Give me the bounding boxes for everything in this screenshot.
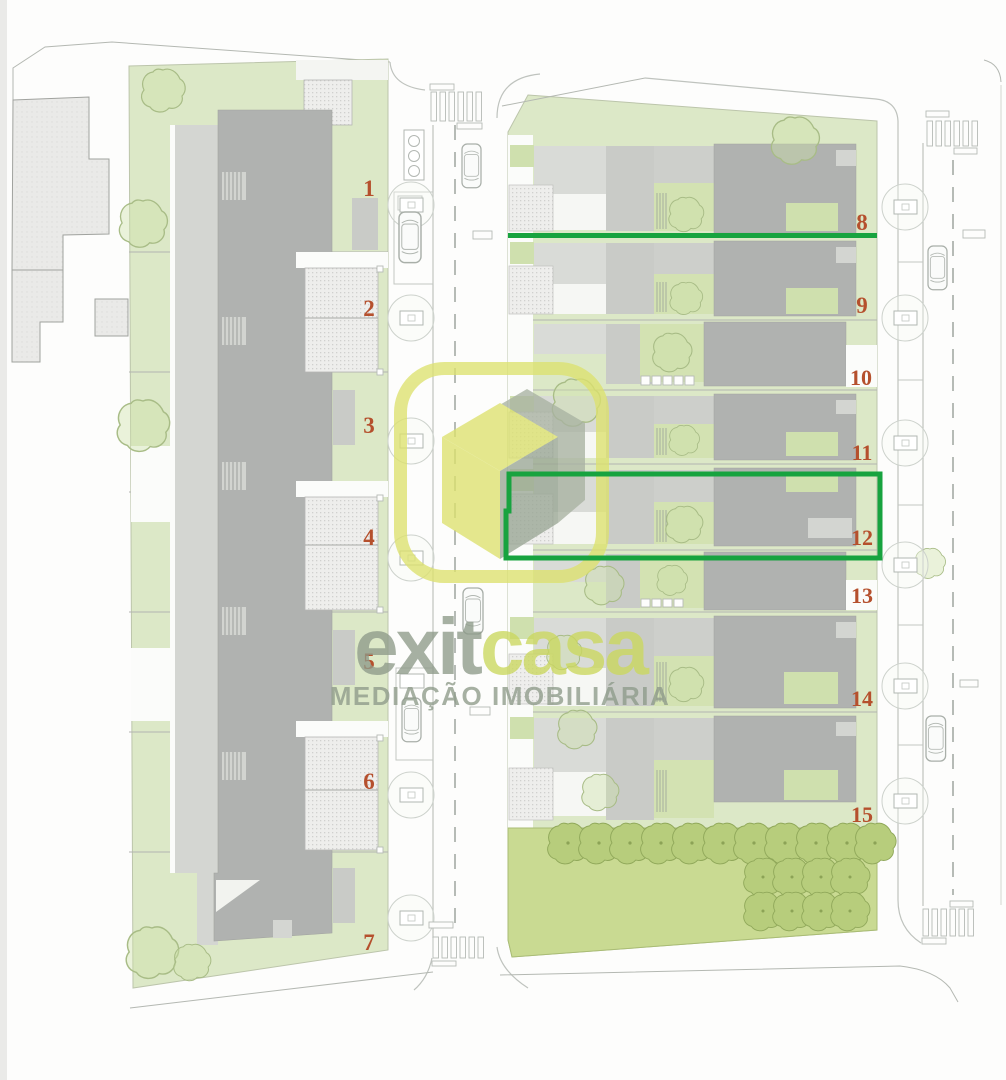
car-icon: [928, 246, 947, 290]
balcony: [333, 868, 355, 923]
lot-number: 11: [852, 440, 873, 465]
street-tree-icon: [882, 295, 928, 341]
existing-building: [12, 270, 63, 362]
lot-number: 12: [851, 525, 873, 550]
logo-wordmark: exitcasa: [354, 602, 649, 691]
balcony: [333, 390, 355, 445]
car-icon: [462, 144, 481, 188]
street-tree-icon: [882, 778, 928, 824]
lot-number: 1: [363, 176, 375, 201]
parked-car-icon: [399, 212, 421, 263]
street-tree-icon: [882, 184, 928, 230]
existing-building: [95, 299, 128, 336]
balcony: [352, 198, 378, 250]
patio: [131, 648, 176, 721]
street-tree-icon: [388, 772, 434, 818]
crosswalk: [922, 901, 974, 944]
lot-number: 9: [856, 293, 868, 318]
lot-number: 15: [851, 802, 873, 827]
logo-subtitle: MEDIAÇÃO IMOBILIÁRIA: [330, 681, 671, 711]
street-tree-icon: [388, 895, 434, 941]
lot-number: 14: [851, 686, 873, 711]
lot-number: 10: [850, 365, 872, 390]
communal-garden: [508, 823, 896, 957]
image-edge: [0, 0, 7, 1080]
plan-image: 1 2 3 4 5 6 7 8 9 10 11 12 13 14 15 exit…: [0, 0, 1006, 1080]
lot-number: 7: [363, 930, 375, 955]
lot-number: 13: [851, 583, 873, 608]
lot-number: 8: [856, 210, 868, 235]
crosswalk: [926, 111, 978, 154]
street-tree-icon: [882, 663, 928, 709]
hatched-patios: [296, 252, 388, 853]
street-tree-icon: [388, 295, 434, 341]
lot-number: 4: [363, 525, 375, 550]
lot-number: 2: [363, 296, 375, 321]
building-light-slab: [175, 125, 218, 873]
street-tree-icon: [882, 542, 928, 588]
balcony: [333, 630, 355, 685]
lot-number: 6: [363, 769, 375, 794]
existing-building: [12, 97, 109, 270]
recycling-bins-icon: [404, 130, 424, 180]
street-tree-icon: [882, 420, 928, 466]
left-parcel: [117, 59, 388, 988]
crosswalk: [430, 84, 482, 129]
site-plan: 1 2 3 4 5 6 7 8 9 10 11 12 13 14 15 exit…: [0, 0, 1006, 1080]
lot-number: 3: [363, 413, 375, 438]
car-icon: [926, 716, 946, 761]
crosswalk: [429, 922, 484, 966]
